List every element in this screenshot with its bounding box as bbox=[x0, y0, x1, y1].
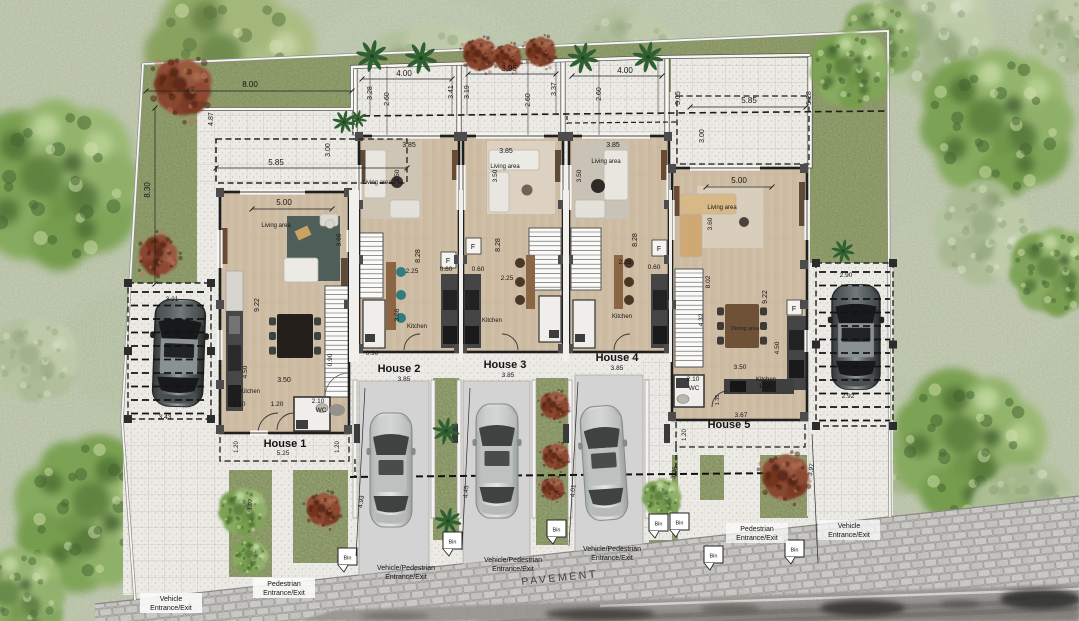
svg-text:3.00: 3.00 bbox=[699, 129, 706, 143]
svg-text:Entrance/Exit: Entrance/Exit bbox=[385, 574, 427, 581]
svg-text:3.67: 3.67 bbox=[735, 412, 748, 419]
svg-text:Bin: Bin bbox=[710, 554, 718, 560]
svg-text:WC: WC bbox=[689, 385, 700, 392]
svg-text:Entrance/Exit: Entrance/Exit bbox=[828, 532, 870, 539]
svg-text:2.60: 2.60 bbox=[525, 93, 532, 107]
svg-text:3.41: 3.41 bbox=[448, 85, 455, 99]
svg-text:2.10: 2.10 bbox=[312, 398, 325, 405]
svg-text:House 5: House 5 bbox=[708, 419, 751, 431]
svg-text:5.05: 5.05 bbox=[675, 91, 682, 105]
svg-text:WC: WC bbox=[316, 407, 327, 414]
svg-text:2.25: 2.25 bbox=[501, 275, 514, 282]
svg-text:Living area: Living area bbox=[261, 223, 291, 229]
svg-text:3.50: 3.50 bbox=[277, 377, 291, 384]
svg-text:Kitchen: Kitchen bbox=[407, 324, 427, 330]
svg-text:1.20: 1.20 bbox=[234, 441, 240, 453]
svg-text:3.19: 3.19 bbox=[464, 85, 471, 99]
svg-text:3.85: 3.85 bbox=[398, 376, 411, 383]
svg-text:8.30: 8.30 bbox=[143, 182, 152, 198]
svg-text:Entrance/Exit: Entrance/Exit bbox=[150, 605, 192, 612]
svg-text:0.90: 0.90 bbox=[327, 353, 334, 366]
svg-text:9.22: 9.22 bbox=[762, 290, 769, 304]
svg-text:3.50: 3.50 bbox=[576, 169, 583, 182]
svg-text:3.28: 3.28 bbox=[367, 86, 374, 100]
svg-text:1.20: 1.20 bbox=[271, 401, 284, 408]
svg-text:1.60: 1.60 bbox=[233, 401, 246, 408]
svg-text:Entrance/Exit: Entrance/Exit bbox=[736, 535, 778, 542]
svg-text:4.87: 4.87 bbox=[208, 112, 215, 126]
svg-text:5.85: 5.85 bbox=[268, 158, 284, 167]
svg-text:0.60: 0.60 bbox=[440, 266, 453, 273]
svg-text:Kitchen: Kitchen bbox=[756, 377, 776, 383]
svg-text:Entrance/Exit: Entrance/Exit bbox=[263, 590, 305, 597]
svg-text:3.50: 3.50 bbox=[492, 169, 499, 182]
svg-text:0.60: 0.60 bbox=[472, 266, 485, 273]
svg-text:0.60: 0.60 bbox=[648, 264, 661, 271]
svg-text:Living area: Living area bbox=[362, 180, 392, 186]
svg-text:Vehicle/Pedestrian: Vehicle/Pedestrian bbox=[377, 565, 435, 572]
svg-text:9.22: 9.22 bbox=[254, 298, 261, 312]
svg-text:4.45: 4.45 bbox=[462, 485, 470, 499]
svg-text:House 4: House 4 bbox=[596, 352, 640, 364]
svg-text:F: F bbox=[446, 258, 450, 265]
svg-text:1.50: 1.50 bbox=[759, 383, 772, 390]
svg-text:3.60: 3.60 bbox=[707, 217, 714, 230]
svg-text:5.25: 5.25 bbox=[277, 450, 290, 457]
svg-text:4.00: 4.00 bbox=[396, 69, 412, 78]
svg-text:3.85: 3.85 bbox=[611, 365, 624, 372]
svg-text:House 3: House 3 bbox=[484, 359, 527, 371]
svg-text:8.28: 8.28 bbox=[632, 233, 639, 247]
svg-text:Kitchen: Kitchen bbox=[612, 314, 632, 320]
svg-text:2.60: 2.60 bbox=[384, 92, 391, 106]
svg-text:Vehicle/Pedestrian: Vehicle/Pedestrian bbox=[583, 546, 641, 553]
svg-text:F: F bbox=[657, 246, 661, 253]
svg-text:Pedestrian: Pedestrian bbox=[267, 581, 301, 588]
svg-text:Dining area: Dining area bbox=[731, 326, 760, 332]
svg-text:5.28: 5.28 bbox=[806, 91, 813, 105]
svg-text:Entrance/Exit: Entrance/Exit bbox=[492, 566, 534, 573]
svg-text:3.60: 3.60 bbox=[336, 233, 343, 246]
svg-text:4.00: 4.00 bbox=[617, 66, 633, 75]
svg-text:3.43: 3.43 bbox=[159, 414, 172, 421]
svg-text:House 2: House 2 bbox=[378, 363, 421, 375]
svg-text:Vehicle: Vehicle bbox=[160, 596, 183, 603]
svg-text:8.02: 8.02 bbox=[705, 275, 712, 288]
svg-text:5.85: 5.85 bbox=[741, 96, 757, 105]
svg-text:3.00: 3.00 bbox=[325, 143, 332, 157]
svg-text:3.37: 3.37 bbox=[551, 82, 558, 96]
svg-text:3.95: 3.95 bbox=[501, 64, 517, 73]
svg-text:Kitchen: Kitchen bbox=[240, 389, 260, 395]
svg-text:Bin: Bin bbox=[449, 540, 457, 546]
svg-text:3.21: 3.21 bbox=[166, 296, 179, 303]
svg-text:0.90: 0.90 bbox=[366, 350, 379, 357]
svg-text:Kitchen: Kitchen bbox=[482, 318, 502, 324]
svg-text:8.00: 8.00 bbox=[242, 80, 258, 89]
svg-text:2.92: 2.92 bbox=[842, 393, 855, 400]
svg-text:2.25: 2.25 bbox=[619, 259, 632, 266]
svg-text:Living area: Living area bbox=[591, 159, 621, 165]
svg-text:3.85: 3.85 bbox=[499, 148, 513, 155]
svg-text:2.90: 2.90 bbox=[840, 272, 853, 279]
svg-text:3.85: 3.85 bbox=[402, 142, 416, 149]
svg-text:3.66: 3.66 bbox=[394, 308, 401, 321]
svg-text:4.01: 4.01 bbox=[569, 484, 577, 498]
svg-text:1.20: 1.20 bbox=[335, 441, 341, 453]
svg-text:3.85: 3.85 bbox=[502, 372, 515, 379]
svg-text:4.32: 4.32 bbox=[698, 313, 705, 326]
svg-text:Bin: Bin bbox=[655, 522, 663, 528]
svg-text:Entrance/Exit: Entrance/Exit bbox=[591, 555, 633, 562]
svg-text:3.50: 3.50 bbox=[734, 364, 747, 371]
svg-text:Bin: Bin bbox=[553, 528, 561, 534]
svg-text:3.85: 3.85 bbox=[606, 142, 620, 149]
svg-text:2.60: 2.60 bbox=[596, 87, 603, 101]
svg-text:House 1: House 1 bbox=[264, 438, 307, 450]
svg-text:2.10: 2.10 bbox=[687, 376, 700, 383]
svg-text:Bin: Bin bbox=[344, 556, 352, 562]
svg-text:5.00: 5.00 bbox=[731, 176, 747, 185]
svg-text:Vehicle: Vehicle bbox=[838, 523, 861, 530]
svg-text:4.50: 4.50 bbox=[242, 365, 249, 378]
svg-text:Living area: Living area bbox=[707, 205, 737, 211]
svg-text:Pedestrian: Pedestrian bbox=[740, 526, 774, 533]
svg-text:1.35: 1.35 bbox=[715, 395, 721, 406]
svg-text:Vehicle/Pedestrian: Vehicle/Pedestrian bbox=[484, 557, 542, 564]
svg-text:Bin: Bin bbox=[676, 521, 684, 527]
svg-text:8.28: 8.28 bbox=[415, 249, 422, 263]
svg-text:1.20: 1.20 bbox=[729, 383, 742, 390]
svg-text:4.50: 4.50 bbox=[774, 341, 781, 354]
svg-text:Bin: Bin bbox=[791, 548, 799, 554]
svg-text:8.28: 8.28 bbox=[495, 238, 502, 252]
svg-text:1.20: 1.20 bbox=[682, 429, 688, 441]
svg-text:5.00: 5.00 bbox=[276, 198, 292, 207]
svg-text:F: F bbox=[471, 244, 475, 251]
svg-text:Living area: Living area bbox=[490, 164, 520, 170]
svg-text:F: F bbox=[792, 306, 796, 313]
svg-text:3.50: 3.50 bbox=[394, 169, 401, 182]
svg-text:2.25: 2.25 bbox=[406, 268, 419, 275]
